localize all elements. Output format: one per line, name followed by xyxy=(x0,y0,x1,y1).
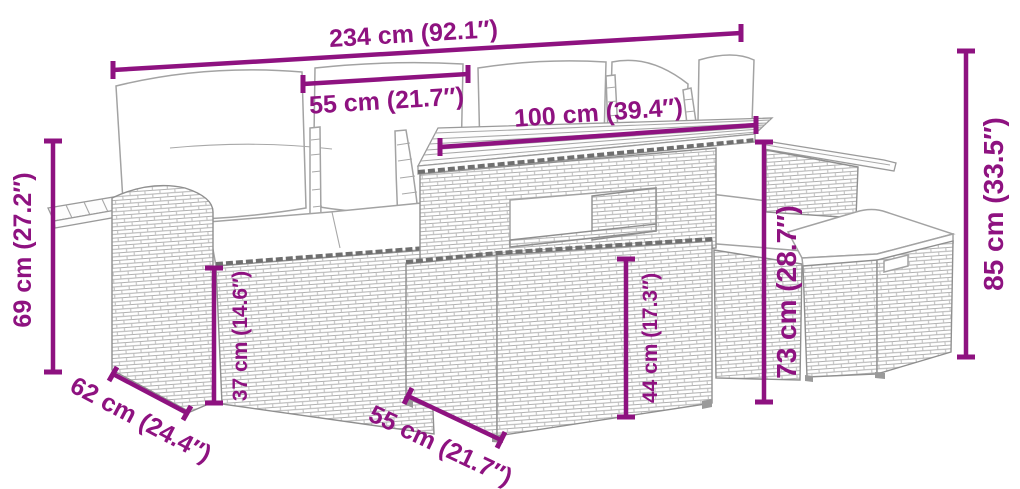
dim-backrest-height-label: 73 cm (28.7″) xyxy=(771,205,802,379)
ottoman-box-left-face xyxy=(803,260,877,377)
dim-seat-height: 37 cm (14.6″) xyxy=(205,268,252,403)
left-armrest-panel xyxy=(112,186,213,412)
dim-overall-height-label: 85 cm (33.5″) xyxy=(978,117,1009,291)
diagram-canvas: 234 cm (92.1″) 55 cm (21.7″) 100 cm (39.… xyxy=(0,0,1020,489)
furniture-dimension-diagram: 234 cm (92.1″) 55 cm (21.7″) 100 cm (39.… xyxy=(0,0,1020,489)
right-ottoman xyxy=(788,210,953,383)
dim-seat-height-label: 37 cm (14.6″) xyxy=(229,271,252,401)
back-pillow-right xyxy=(698,55,754,128)
dim-table-lower-height: 44 cm (17.3″) xyxy=(617,259,662,417)
dim-table-lower-height-label: 44 cm (17.3″) xyxy=(639,273,662,403)
dim-overall-height: 85 cm (33.5″) xyxy=(957,51,1009,357)
furniture-drawing xyxy=(48,55,953,443)
dim-armrest-height-label: 69 cm (27.2″) xyxy=(9,172,37,327)
dim-armrest-height: 69 cm (27.2″) xyxy=(9,141,62,372)
tie-1 xyxy=(310,127,321,224)
table-lower-box-right-face xyxy=(497,241,712,436)
left-armrest xyxy=(48,186,213,412)
